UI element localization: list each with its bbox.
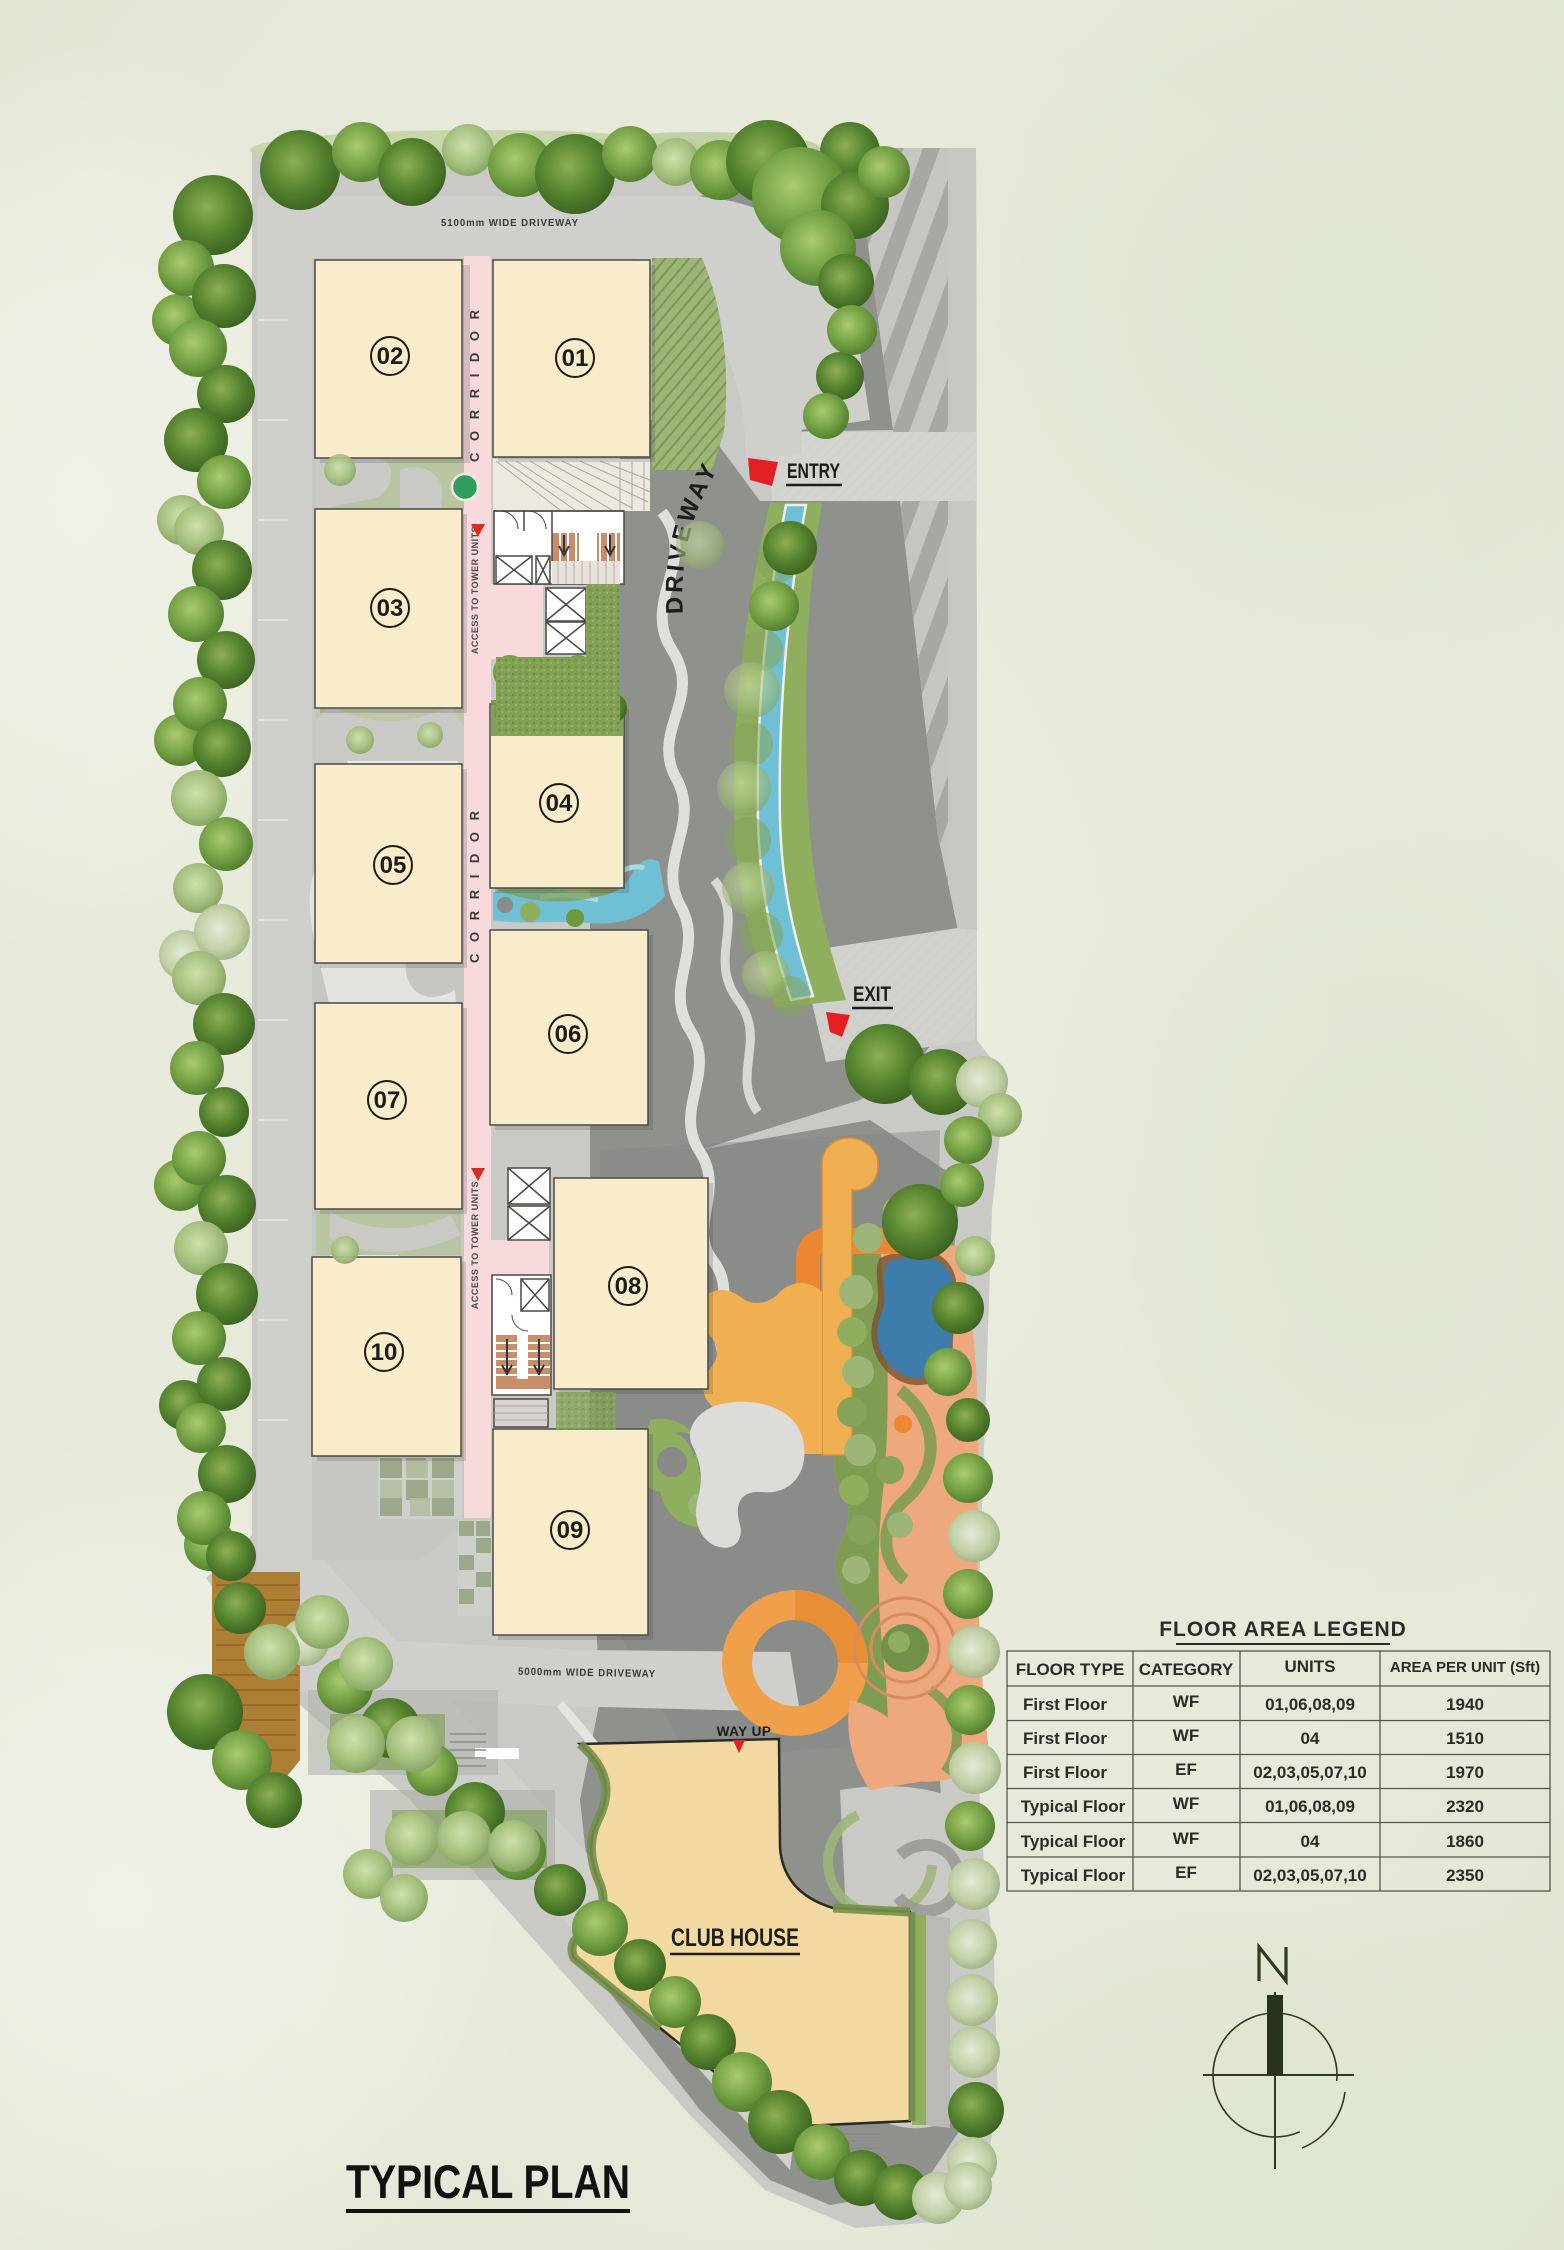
svg-text:5100mm WIDE DRIVEWAY: 5100mm WIDE DRIVEWAY — [441, 217, 579, 229]
svg-text:05: 05 — [380, 852, 407, 879]
svg-text:WF: WF — [1173, 1794, 1199, 1813]
svg-text:EF: EF — [1175, 1760, 1197, 1779]
svg-text:EXIT: EXIT — [853, 983, 891, 1006]
svg-text:UNITS: UNITS — [1285, 1657, 1336, 1676]
svg-text:Typical Floor: Typical Floor — [1021, 1832, 1126, 1851]
svg-text:01: 01 — [562, 345, 589, 372]
svg-text:Typical Floor: Typical Floor — [1021, 1797, 1126, 1816]
svg-text:Typical Floor: Typical Floor — [1021, 1866, 1126, 1885]
svg-text:04: 04 — [1301, 1729, 1320, 1748]
svg-text:ACCESS TO TOWER UNITS: ACCESS TO TOWER UNITS — [470, 1181, 480, 1309]
svg-text:First Floor: First Floor — [1023, 1729, 1107, 1748]
svg-text:1860: 1860 — [1446, 1832, 1484, 1851]
svg-text:10: 10 — [371, 1339, 398, 1366]
svg-text:03: 03 — [377, 595, 404, 622]
svg-text:01,06,08,09: 01,06,08,09 — [1265, 1797, 1355, 1816]
svg-text:2350: 2350 — [1446, 1866, 1484, 1885]
svg-text:5000mm WIDE DRIVEWAY: 5000mm WIDE DRIVEWAY — [518, 1666, 656, 1680]
svg-text:FLOOR AREA LEGEND: FLOOR AREA LEGEND — [1159, 1618, 1407, 1641]
svg-text:AREA PER UNIT (Sft): AREA PER UNIT (Sft) — [1390, 1659, 1540, 1676]
svg-text:EF: EF — [1175, 1863, 1197, 1882]
svg-text:C O R R I D O R: C O R R I D O R — [467, 807, 482, 963]
svg-text:01,06,08,09: 01,06,08,09 — [1265, 1695, 1355, 1714]
svg-text:02,03,05,07,10: 02,03,05,07,10 — [1253, 1763, 1366, 1782]
svg-text:1510: 1510 — [1446, 1729, 1484, 1748]
svg-text:ACCESS TO TOWER UNITS: ACCESS TO TOWER UNITS — [470, 526, 480, 654]
svg-text:09: 09 — [557, 1517, 584, 1544]
svg-text:WF: WF — [1173, 1829, 1199, 1848]
svg-text:08: 08 — [615, 1273, 642, 1300]
svg-text:WAY UP: WAY UP — [717, 1724, 772, 1739]
svg-text:2320: 2320 — [1446, 1797, 1484, 1816]
svg-text:WF: WF — [1173, 1692, 1199, 1711]
svg-text:CLUB HOUSE: CLUB HOUSE — [671, 1924, 799, 1952]
svg-text:1940: 1940 — [1446, 1695, 1484, 1714]
svg-text:TYPICAL PLAN: TYPICAL PLAN — [346, 2155, 630, 2208]
svg-text:04: 04 — [546, 790, 573, 817]
svg-text:First Floor: First Floor — [1023, 1695, 1107, 1714]
svg-text:04: 04 — [1301, 1832, 1320, 1851]
svg-text:02: 02 — [377, 343, 404, 370]
svg-text:CATEGORY: CATEGORY — [1139, 1660, 1234, 1679]
svg-text:ENTRY: ENTRY — [787, 460, 840, 483]
svg-text:02,03,05,07,10: 02,03,05,07,10 — [1253, 1866, 1366, 1885]
svg-text:FLOOR TYPE: FLOOR TYPE — [1016, 1660, 1125, 1679]
svg-text:First Floor: First Floor — [1023, 1763, 1107, 1782]
svg-text:07: 07 — [374, 1087, 401, 1114]
svg-text:06: 06 — [555, 1021, 582, 1048]
svg-text:1970: 1970 — [1446, 1763, 1484, 1782]
svg-text:WF: WF — [1173, 1726, 1199, 1745]
